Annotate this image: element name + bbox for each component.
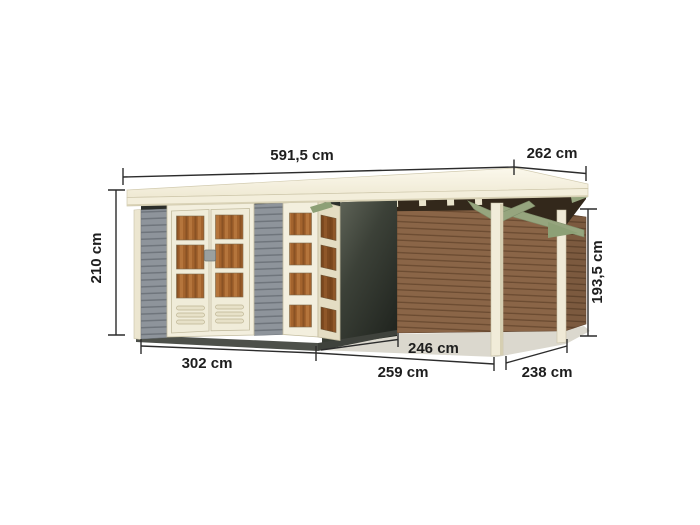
eave-height-label: 193,5 cm xyxy=(589,240,606,303)
shed-dimension-diagram: 591,5 cm 262 cm 210 cm 193,5 cm 302 cm 2… xyxy=(0,0,700,525)
door-window-panes-right xyxy=(216,215,244,297)
wall-height-label: 210 cm xyxy=(88,233,105,284)
door-lock-plate xyxy=(205,250,216,261)
annex-width-label: 259 cm xyxy=(378,364,429,381)
diagram-canvas: 591,5 cm 262 cm 210 cm 193,5 cm 302 cm 2… xyxy=(0,0,700,525)
front-wall-strip-mid xyxy=(254,203,283,336)
annex-rear-wall xyxy=(397,206,557,333)
roof-width-label: 591,5 cm xyxy=(270,147,333,164)
side-window-element xyxy=(283,201,340,341)
front-wall-strip-left xyxy=(141,209,167,339)
shed-width-label: 302 cm xyxy=(182,355,233,372)
door-window-panes-left xyxy=(177,216,205,298)
shed-depth-label: 246 cm xyxy=(408,340,459,357)
roof-depth-label: 262 cm xyxy=(527,145,578,162)
front-post-shade xyxy=(500,204,503,355)
annex-depth-label: 238 cm xyxy=(522,364,573,381)
double-door xyxy=(167,196,254,337)
corner-trim-left xyxy=(134,210,141,340)
